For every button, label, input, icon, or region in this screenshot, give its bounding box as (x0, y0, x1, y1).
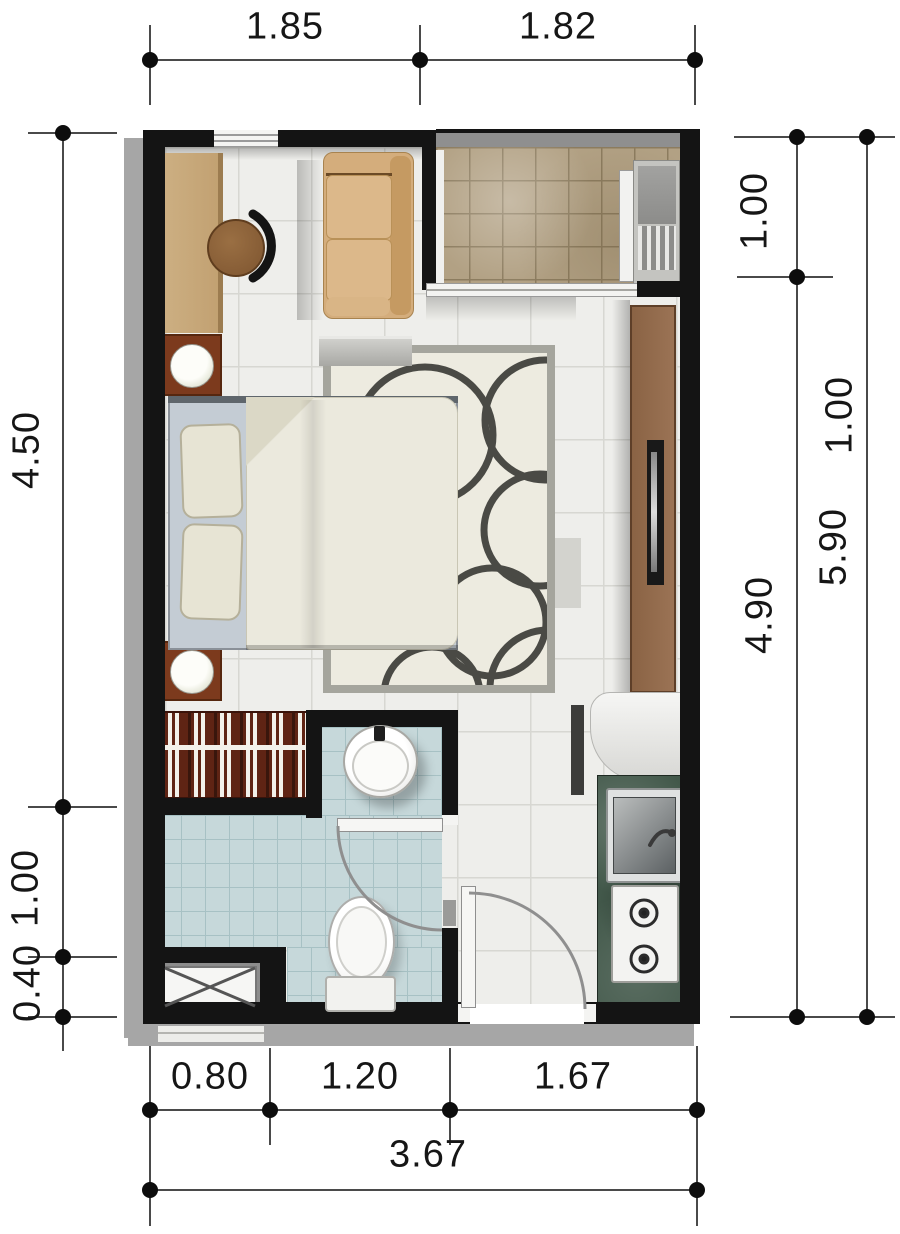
dim-tick (737, 276, 833, 278)
dim-label-bottom-2: 1.20 (321, 1056, 399, 1099)
bathroom-floor-mid (157, 815, 442, 947)
dim-label-right-outer-2: 5.90 (813, 508, 856, 586)
window-top (214, 130, 278, 147)
sofa-armrest (326, 297, 390, 316)
wall-right (680, 130, 700, 1024)
dim-label-bottom-total: 3.67 (389, 1134, 467, 1177)
sill-inner-shadow (426, 297, 576, 321)
console-shadow (612, 300, 630, 692)
dim-label-bottom-3: 1.67 (534, 1056, 612, 1099)
dim-dot (262, 1102, 278, 1118)
toilet-seat (336, 906, 387, 978)
niche-wall-right (260, 947, 286, 1004)
dim-label-left-2: 1.00 (5, 849, 48, 927)
bathroom-door-jamb (442, 815, 458, 825)
tv-screen (651, 452, 657, 572)
dim-dot (142, 1182, 158, 1198)
bathroom-wall-bench (157, 798, 308, 815)
bed-foot-shadow (246, 645, 458, 650)
pillow (179, 423, 243, 519)
dim-dot (689, 1182, 705, 1198)
desk-chair (207, 219, 265, 277)
dim-dot (687, 52, 703, 68)
dim-dot (859, 1009, 875, 1025)
dim-tick (149, 1046, 151, 1226)
ac-unit-grille (638, 226, 676, 270)
shadow-left (124, 138, 145, 1038)
bathroom-door-leaf (337, 818, 443, 832)
balcony-partition-frame (436, 150, 444, 283)
sofa (323, 152, 414, 319)
dim-dot (689, 1102, 705, 1118)
bathroom-door-stop (443, 900, 456, 926)
dim-tick (28, 132, 117, 134)
side-table (319, 336, 412, 366)
balcony-partition-wall (422, 130, 436, 290)
dim-dot (859, 129, 875, 145)
dim-tick (28, 806, 117, 808)
stove (611, 885, 679, 983)
bathroom-faucet (374, 726, 385, 741)
dim-dot (789, 129, 805, 145)
ac-unit-top (638, 166, 676, 224)
dim-dot (55, 1009, 71, 1025)
dim-dot (412, 52, 428, 68)
dim-dot (142, 52, 158, 68)
wall-bottom-left (143, 1002, 470, 1024)
dim-label-left-1: 4.50 (6, 411, 49, 489)
sofa-cushion (326, 239, 392, 301)
pillow (179, 523, 243, 621)
dim-label-top-2: 1.82 (519, 6, 597, 49)
balcony-railing (436, 133, 680, 147)
toilet-tank (325, 976, 396, 1012)
dim-label-right-inner-1: 1.00 (734, 172, 777, 250)
dim-dot (55, 125, 71, 141)
dim-dot (789, 1009, 805, 1025)
dim-label-top-1: 1.85 (246, 6, 324, 49)
dim-dot (789, 269, 805, 285)
bathroom-wall-right-lower (442, 928, 458, 1004)
dim-tick (449, 1048, 451, 1145)
dim-tick (269, 1048, 271, 1145)
dim-dot (55, 949, 71, 965)
dim-label-right-outer-1: 1.00 (819, 376, 862, 454)
sofa-backrest (390, 156, 411, 315)
duvet-fold-line (300, 400, 326, 648)
slatted-rack (160, 711, 308, 799)
dim-tick (696, 1046, 698, 1226)
dim-label-right-inner-2: 4.90 (739, 576, 782, 654)
kitchen-counter-edge (571, 705, 584, 795)
dim-line-right-outer (866, 137, 868, 1017)
dim-dot (142, 1102, 158, 1118)
balcony-side-wall (637, 281, 680, 297)
dim-line-bottom-1 (150, 1109, 698, 1111)
bathroom-wall-right-upper (442, 710, 458, 825)
bathroom-wall-left (306, 710, 322, 818)
bathroom-sink-basin (352, 740, 409, 792)
balcony-window-sill (426, 283, 638, 297)
dim-label-left-3: 0.40 (7, 944, 50, 1022)
wall-top (143, 130, 436, 147)
niche-wall-top (155, 947, 267, 963)
exterior-sill (158, 1026, 264, 1042)
dim-label-bottom-1: 0.80 (171, 1056, 249, 1099)
wall-bottom-right (584, 1002, 700, 1024)
kitchen-sink-basin (613, 797, 676, 874)
entry-door-leaf (461, 886, 476, 1008)
floor-plan: 1.85 1.82 4.50 1.00 0.40 1.00 1.00 5.90 … (0, 0, 900, 1234)
dim-dot (442, 1102, 458, 1118)
sofa-shadow (297, 160, 323, 320)
table-lamp (170, 650, 214, 694)
dim-line-left (62, 133, 64, 1051)
sofa-cushion (326, 175, 392, 239)
slatted-rack-rail (162, 745, 306, 750)
wall-left (143, 130, 165, 1024)
dim-line-bottom-2 (150, 1189, 698, 1191)
floor-shadow-patch (553, 538, 581, 608)
dim-dot (55, 799, 71, 815)
entry-door-jamb (584, 1004, 596, 1022)
table-lamp (170, 344, 214, 388)
